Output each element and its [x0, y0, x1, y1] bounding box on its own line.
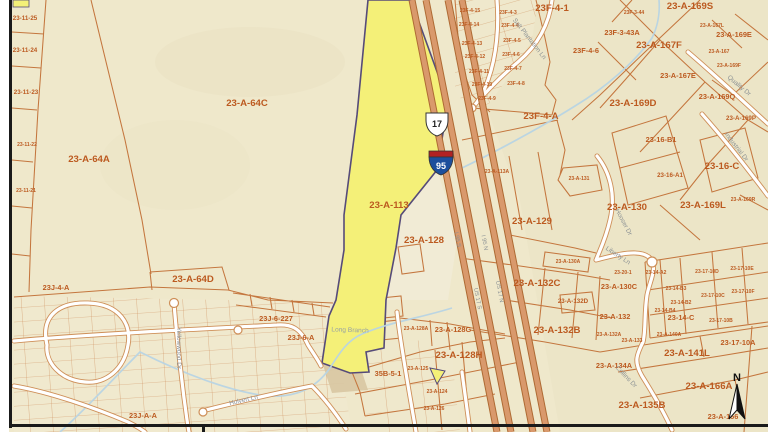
parcel-label: 23-A-140A — [657, 332, 682, 338]
parcel-label: 23-14-B3 — [666, 286, 687, 292]
north-arrow-label: N — [733, 372, 741, 384]
cul-de-sac — [647, 257, 657, 267]
street-label: Yellowwood Dr — [175, 327, 182, 370]
parcel-label: 23F-4-6 — [573, 46, 599, 55]
parcel-label: 23J-A-A — [129, 411, 158, 420]
parcel-label: 23-A-169L — [680, 200, 726, 211]
parcel-label: 23F-3-44 — [624, 10, 645, 16]
parcel-label: 23-16-B1 — [646, 135, 677, 144]
parcel-label: 23F-3-43A — [604, 28, 640, 37]
parcel-label: 23-11-25 — [13, 15, 38, 22]
parcel-label: 23J-4-A — [43, 283, 70, 292]
cul-de-sac — [234, 326, 242, 334]
parcel-label: 23J-6-227 — [259, 314, 293, 323]
parcel-label: 23-A-132B — [534, 325, 581, 336]
parcel-label: 23-A-169E — [716, 30, 752, 39]
parcel-label: 23-A-126 — [424, 406, 445, 412]
parcel-label: 23-A-131 — [569, 176, 590, 182]
parcel-label: 23-A-169Q — [699, 92, 736, 101]
parcel-label: 23-A-130 — [607, 202, 647, 213]
parcel-label: 23-A-128 — [404, 235, 445, 246]
parcel-label: 23F-4-9 — [478, 96, 496, 102]
parcel-label: 23-14-A2 — [646, 270, 667, 276]
parcel-label: 23-16-C — [705, 161, 740, 172]
parcel-label: 23F-4-14 — [459, 22, 480, 28]
parcel-label: 23-A-135B — [619, 400, 666, 411]
gis-parcel-map-viewport[interactable]: 23-11-2523-11-2423-11-2323-11-2223-11-21… — [0, 0, 768, 432]
cul-de-sac — [199, 408, 207, 416]
parcel-label: 23F-4-8 — [507, 81, 525, 87]
parcel-label: 23-A-133 — [622, 338, 643, 344]
parcel-label: 23-17-10D — [695, 269, 719, 275]
parcel-label: 23F-4-1 — [535, 3, 569, 14]
parcel-label: 23-A-169S — [667, 1, 714, 12]
parcel-label: 35B-5-1 — [375, 369, 402, 378]
parcel-label: 23-A-125 — [408, 366, 429, 372]
parcel-label: 23-A-132 — [600, 312, 631, 321]
parcel-label: 23-17-10C — [701, 293, 725, 299]
parcel-label: 23-A-64D — [172, 274, 214, 285]
parcel-label: 23-A-132C — [514, 278, 561, 289]
parcel-label: 23-11-21 — [16, 188, 36, 194]
parcel-label: 23-11-24 — [13, 47, 38, 54]
parcel-label: 23-14-C — [668, 313, 695, 322]
parcel-label: 23-A-132A — [597, 332, 622, 338]
parcel-label: 23-17-10E — [730, 266, 754, 272]
parcel-label: 23F-4-10 — [472, 82, 493, 88]
parcel-label: 23-A-169D — [610, 98, 657, 109]
parcel-label: 23J-6-A — [288, 333, 315, 342]
parcel-label: 23-A-130C — [601, 282, 638, 291]
parcel-map[interactable]: 23-11-2523-11-2423-11-2323-11-2223-11-21… — [0, 0, 768, 432]
cul-de-sac — [170, 299, 179, 308]
parcel-label: 23-A-113A — [485, 169, 510, 175]
i-95-shield-number: 95 — [436, 161, 446, 171]
parcel-label: 23-A-141L — [664, 348, 710, 359]
parcel-label: 23-A-130A — [556, 259, 581, 265]
parcel-label: 23-17-10A — [721, 338, 757, 347]
parcel-label: 23-A-129 — [512, 216, 552, 227]
parcel-label: 23-A-167F — [636, 40, 682, 51]
parcel-label: 23F-4-13 — [462, 41, 483, 47]
us-17-shield-number: 17 — [432, 119, 442, 129]
parcel-label: 23-20-1 — [614, 270, 631, 276]
parcel-label: 23F-4-15 — [460, 8, 481, 14]
parcel-label: 23-A-169F — [717, 63, 741, 69]
parcel-label: 23F-4-3 — [499, 10, 517, 16]
parcel-label: 23-17-10B — [709, 318, 733, 324]
parcel-label: 23-A-167L — [700, 23, 724, 29]
parcel-label: 23-A-167 — [709, 49, 730, 55]
parcel-label: 23-A-128H — [436, 350, 483, 361]
parcel-label: 23-A-128A — [404, 326, 429, 332]
parcel-label: 23-11-23 — [14, 89, 39, 96]
parcel-label: 23-A-166A — [686, 381, 733, 392]
parcel-label: 23F-4-A — [523, 111, 558, 122]
parcel-label: 23F-4-11 — [469, 69, 489, 75]
parcel-label: 23-A-64C — [226, 98, 268, 109]
parcel-label: 23F-4-6 — [502, 52, 520, 58]
parcel-label: 23F-4-7 — [504, 66, 522, 72]
parcel-label: 23-A-124 — [427, 389, 448, 395]
parcel-label: 23-A-169P — [726, 115, 756, 122]
parcel-label: 23-A-132D — [558, 298, 589, 305]
parcel-label: 23-14-B2 — [671, 300, 692, 306]
parcel-label: 23F-4-5 — [503, 38, 521, 44]
parcel-label: 23-A-128G — [435, 325, 472, 334]
parcel-label: 23-17-10F — [731, 289, 754, 295]
parcel-label: 23F-4-12 — [465, 54, 486, 60]
parcel-label: 23-A-113 — [369, 200, 408, 211]
parcel-label: 23-A-167E — [660, 71, 696, 80]
parcel-label: 23-16-A1 — [657, 172, 683, 179]
parcel-label: 23-A-64A — [68, 154, 110, 165]
water-label: Long Branch — [331, 326, 369, 334]
parcel-label: 23-A-169R — [731, 197, 756, 203]
parcel-label: 23-11-22 — [17, 142, 37, 148]
